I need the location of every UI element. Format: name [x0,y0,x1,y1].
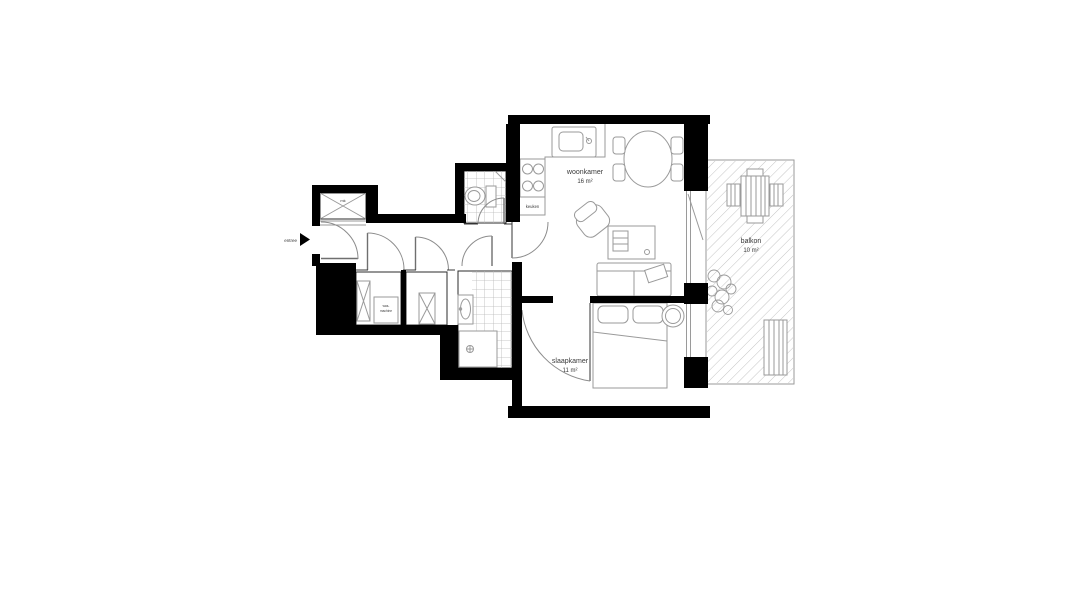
balcony-chair [770,184,783,206]
wardrobe [357,281,370,321]
meter-cupboard-label: mk [340,198,345,203]
balcony-table [741,169,769,223]
bedroom-name: slaapkamer [552,358,589,365]
door-entry [321,222,358,259]
window [687,191,704,283]
door-bathroom [462,236,492,266]
balcony-area: 10 m² [743,248,758,254]
bedside-chair [662,305,684,327]
floor-plan-drawing: balkon 10 m² keuken [0,0,1092,606]
door-closet-right [416,237,449,270]
wardrobe [419,293,435,324]
balcony: balkon 10 m² [706,160,794,384]
entrance-arrow-icon [300,233,310,246]
sofa [597,263,671,296]
kitchen-label: keuken [526,204,540,209]
door-bedroom [522,303,590,381]
washing-machine-label-1: was- [383,304,390,308]
living-room-label: woonkamer 16 m² [566,169,604,185]
window [687,304,691,357]
dining-chair [671,137,683,154]
dining-chair [671,164,683,181]
living-room-name: woonkamer [566,169,604,176]
washing-machine: was- machine [374,297,398,323]
balcony-name: balkon [741,238,762,245]
sun-lounger [764,320,787,375]
door-living-room [512,222,548,258]
shower [459,331,497,367]
dining-table [624,131,672,187]
bedroom-label: slaapkamer 11 m² [552,358,589,374]
armchair [570,198,613,241]
washing-machine-label-2: machine [380,309,392,313]
door-closet-left [368,233,405,270]
thin-partitions [356,224,512,270]
floor-plan: balkon 10 m² keuken [0,0,1092,606]
dining-chair [613,137,625,154]
entrance-marker: entree [284,233,310,246]
stove [520,159,545,197]
kitchen-sink [552,127,596,157]
entrance-label: entree [284,238,297,243]
living-room-area: 16 m² [577,179,592,185]
bathroom-sink [458,295,473,324]
coffee-table [608,226,655,259]
bed [593,303,667,388]
dining-chair [613,164,625,181]
balcony-chair [727,184,740,206]
